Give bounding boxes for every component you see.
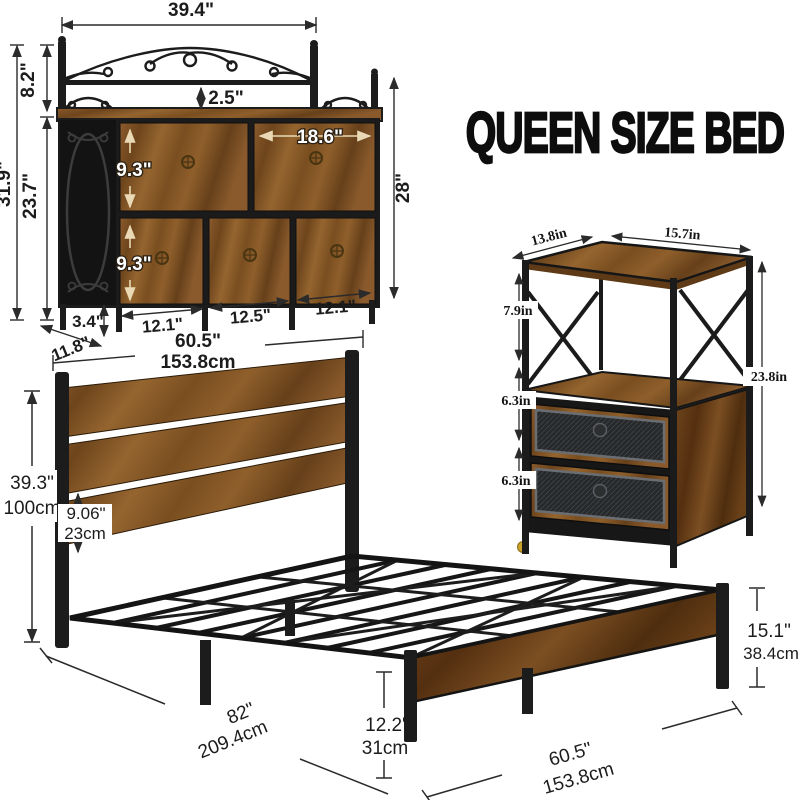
finial-icon bbox=[310, 40, 318, 48]
dresser-illustration bbox=[57, 36, 382, 332]
dresser-drawer bbox=[296, 218, 375, 304]
dresser-body-height-label: 23.7" bbox=[20, 173, 41, 219]
bed-platform-height-in-label: 12.2" bbox=[365, 715, 409, 736]
nightstand-height-label: 23.8in bbox=[751, 370, 787, 385]
bed-headboard-height-cm-label: 100cm bbox=[3, 498, 60, 519]
bed-under-headboard-cm-label: 23cm bbox=[64, 524, 106, 543]
scrollwork-icon bbox=[66, 48, 310, 80]
bed-platform-height-cm-label: 31cm bbox=[362, 738, 408, 759]
page-title: QUEEN SIZE BED bbox=[466, 102, 784, 165]
diagram-canvas: 39.4" 2.5" 8.2" 31.9" 23.7" 9.3" 9.3" 18… bbox=[0, 0, 800, 800]
dresser-drawer2-width-label: 12.5" bbox=[229, 305, 272, 328]
tabletop bbox=[524, 242, 752, 282]
dresser-drawer3-width-label: 12.1" bbox=[314, 296, 357, 319]
dresser-upper-right-drawer-width-label: 18.6" bbox=[297, 127, 343, 148]
bed-under-headboard-in-label: 9.06" bbox=[66, 504, 105, 523]
product-dimension-diagram: 39.4" 2.5" 8.2" 31.9" 23.7" 9.3" 9.3" 18… bbox=[0, 0, 800, 800]
nightstand-drawer1-height-label: 6.3in bbox=[501, 394, 530, 409]
bed-footboard-height-cm-label: 38.4cm bbox=[743, 644, 799, 663]
dresser-right-height-label: 28" bbox=[393, 173, 414, 203]
bed-headboard-height-in-label: 39.3" bbox=[10, 473, 54, 494]
side-scroll-panel bbox=[60, 120, 116, 305]
bed-footboard-height-in-label: 15.1" bbox=[747, 621, 791, 642]
x-brace-icon bbox=[528, 290, 748, 384]
drawer-knob-icon bbox=[594, 485, 607, 498]
nightstand-drawer2-height-label: 6.3in bbox=[501, 474, 530, 489]
dresser-upper-drawer-height-label: 9.3" bbox=[116, 160, 151, 181]
nightstand-shelf-height-label: 7.9in bbox=[503, 304, 532, 319]
dresser-total-height-label: 31.9" bbox=[0, 161, 15, 207]
nightstand-depth-label: 13.8in bbox=[530, 226, 569, 250]
nightstand-side-panel bbox=[676, 388, 752, 546]
nightstand-illustration bbox=[522, 242, 753, 568]
finial-icon bbox=[58, 36, 66, 44]
dresser-width-in-label: 60.5" bbox=[175, 331, 221, 352]
dresser-hutch-height-label: 8.2" bbox=[18, 62, 39, 97]
finial-icon bbox=[371, 69, 378, 76]
dresser-width-cm-label: 153.8cm bbox=[160, 352, 235, 373]
nightstand-width-label: 15.7in bbox=[664, 225, 702, 243]
dresser-shelf-gap-label: 2.5" bbox=[208, 88, 243, 109]
dresser-lower-drawer-height-label: 9.3" bbox=[116, 254, 151, 275]
drawer-knob-icon bbox=[594, 424, 607, 437]
dresser-leg-height-label: 3.4" bbox=[72, 312, 104, 331]
dresser-top-width-label: 39.4" bbox=[168, 0, 214, 21]
